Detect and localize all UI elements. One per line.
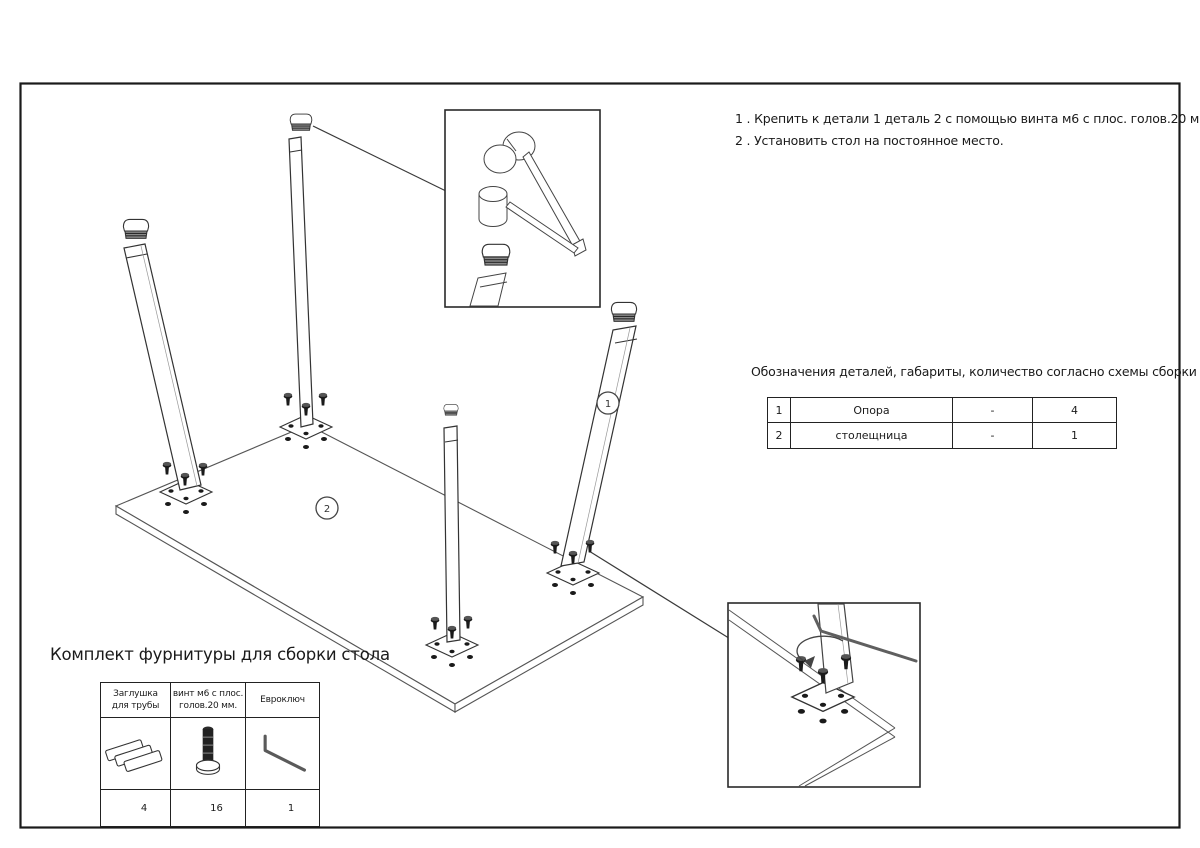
callout-leg: 1 — [597, 392, 619, 414]
assembly-drawing-page: 1 2 — [0, 0, 1200, 848]
part-number: 2 — [768, 423, 791, 448]
parts-table: 1 Опора - 4 2 столещница - 1 — [767, 397, 1117, 449]
kit-header-hex-key: Евроключ — [246, 683, 319, 718]
pipe-plug-icon — [101, 718, 171, 790]
hardware-kit-title: Комплект фурнитуры для сборки стола — [50, 645, 390, 664]
kit-qty-hex-key: 1 — [246, 790, 319, 826]
table-leg-right — [561, 326, 637, 566]
svg-text:2: 2 — [324, 504, 330, 515]
pipe-cap-icon — [123, 219, 148, 238]
pipe-cap-icon — [290, 114, 312, 130]
pipe-cap-icon — [444, 404, 458, 415]
callout-tabletop: 2 — [316, 497, 338, 519]
parts-table-heading: Обозначения деталей, габариты, количеств… — [751, 364, 1171, 379]
table-leg-back-middle — [289, 137, 313, 427]
table-leg-back-left — [124, 244, 201, 490]
screw-icon — [171, 718, 246, 790]
kit-qty-pipe-plug: 4 — [101, 790, 171, 826]
table-leg-front-middle — [444, 426, 460, 642]
kit-header-pipe-plug: Заглушка для трубы — [101, 683, 171, 718]
part-number: 1 — [768, 398, 791, 423]
hex-key-icon — [246, 718, 319, 790]
kit-header-screw: винт м6 с плос. голов.20 мм. — [171, 683, 246, 718]
pipe-cap-icon — [482, 244, 510, 265]
part-name: Опора — [791, 398, 953, 423]
part-dimensions: - — [953, 398, 1033, 423]
instruction-line: 1 . Крепить к детали 1 деталь 2 с помощь… — [735, 108, 1185, 130]
part-dimensions: - — [953, 423, 1033, 448]
part-quantity: 4 — [1033, 398, 1116, 423]
detail-box-leg-top — [445, 110, 600, 307]
pipe-cap-icon — [611, 302, 636, 321]
kit-qty-screw: 16 — [171, 790, 246, 826]
instructions: 1 . Крепить к детали 1 деталь 2 с помощь… — [735, 108, 1185, 152]
detail-box-foot — [728, 603, 920, 787]
hardware-kit-table: Заглушка для трубы винт м6 с плос. голов… — [100, 682, 320, 827]
part-quantity: 1 — [1033, 423, 1116, 448]
part-name: столещница — [791, 423, 953, 448]
instruction-line: 2 . Установить стол на постоянное место. — [735, 130, 1185, 152]
svg-text:1: 1 — [605, 399, 611, 410]
